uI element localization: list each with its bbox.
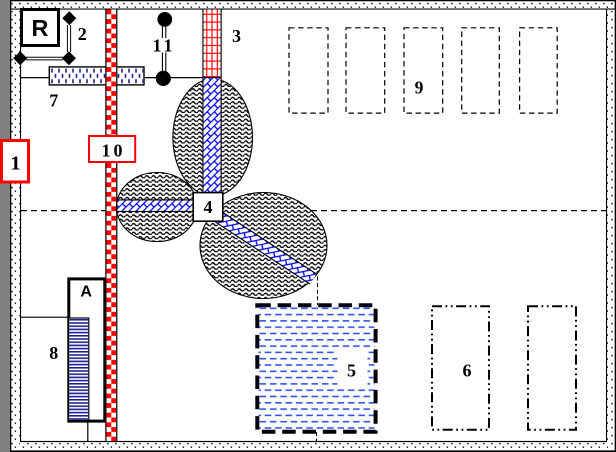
svg-text:2: 2 [78, 24, 87, 44]
svg-text:10: 10 [102, 140, 126, 160]
svg-text:6: 6 [463, 361, 472, 381]
svg-text:11: 11 [152, 35, 175, 55]
svg-text:7: 7 [49, 91, 58, 111]
svg-text:3: 3 [232, 26, 241, 46]
svg-text:5: 5 [347, 361, 356, 381]
svg-text:4: 4 [204, 197, 213, 217]
svg-text:A: A [80, 283, 92, 300]
svg-text:R: R [32, 15, 49, 41]
svg-text:9: 9 [415, 77, 424, 97]
svg-text:1: 1 [10, 152, 20, 174]
svg-text:8: 8 [49, 343, 58, 363]
